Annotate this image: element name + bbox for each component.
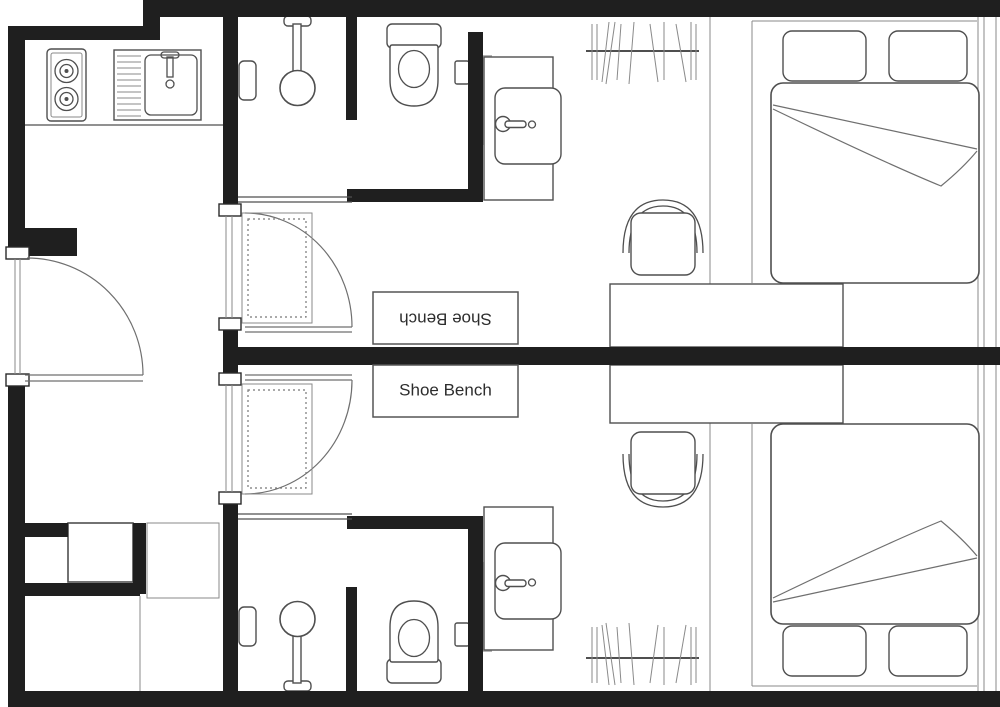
- door-jamb: [219, 492, 241, 504]
- pillow: [783, 31, 866, 81]
- pillow: [889, 31, 967, 81]
- shower-shelf: [239, 607, 256, 646]
- washer-space: [68, 523, 133, 582]
- alcove-wall-c: [25, 583, 140, 596]
- vanity-sink-icon: [483, 507, 561, 652]
- door-jamb: [219, 318, 241, 330]
- shoe-bench-upper: Shoe Bench: [373, 292, 518, 344]
- toilet-paper-holder: [455, 61, 469, 84]
- door-jamb: [219, 373, 241, 385]
- vanity-sink-icon: [483, 55, 561, 200]
- top-wall: [143, 0, 1000, 17]
- vanity-wall-lower: [468, 516, 483, 691]
- unit-divider-wall: [233, 347, 1000, 365]
- pillow: [889, 626, 967, 676]
- shoe-bench-label: Shoe Bench: [399, 310, 492, 329]
- double-bed: [752, 424, 979, 686]
- floor-plan-drawing: Shoe Bench Shoe Bench: [0, 0, 1000, 707]
- pillow: [783, 626, 866, 676]
- door-jamb: [219, 204, 241, 216]
- left-wall-upper: [8, 26, 25, 256]
- bathroom-wall-upper-unit: [347, 189, 470, 202]
- toilet-icon: [387, 24, 441, 106]
- stove-icon: [47, 49, 86, 121]
- toilet-paper-holder: [455, 623, 469, 646]
- door-jamb: [6, 374, 29, 386]
- corridor-wall-lower: [223, 502, 238, 691]
- floor-plan: Shoe Bench Shoe Bench: [0, 0, 1000, 707]
- shower-partition-upper: [346, 17, 357, 120]
- shower-partition-lower: [346, 587, 357, 691]
- shower-shelf: [239, 61, 256, 100]
- corridor-wall-upper: [223, 17, 238, 207]
- bathroom-wall-lower-unit: [347, 516, 470, 529]
- bottom-wall: [8, 691, 1000, 707]
- alcove-wall-a: [25, 523, 68, 537]
- desk: [610, 284, 843, 347]
- left-wall-lower: [8, 383, 25, 691]
- double-bed: [752, 21, 979, 283]
- shoe-bench-lower: Shoe Bench: [373, 365, 518, 417]
- desk: [610, 365, 843, 423]
- shoe-bench-label: Shoe Bench: [399, 380, 492, 399]
- top-wall-left: [8, 26, 160, 40]
- door-jamb: [6, 247, 29, 259]
- kitchen-sink-icon: [114, 50, 201, 120]
- vanity-wall-upper: [468, 32, 483, 202]
- toilet-icon: [387, 601, 441, 683]
